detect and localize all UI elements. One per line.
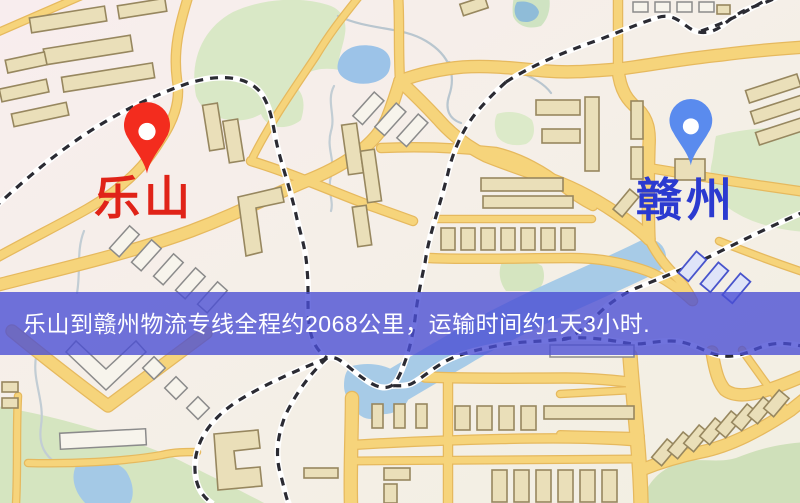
destination-label: 赣州 — [636, 178, 736, 224]
map-screenshot: 乐山 赣州 乐山到赣州物流专线全程约2068公里，运输时间约1天3小时. — [0, 0, 800, 503]
route-banner: 乐山到赣州物流专线全程约2068公里，运输时间约1天3小时. — [0, 292, 800, 355]
map-image — [0, 0, 800, 503]
origin-label: 乐山 — [94, 176, 194, 222]
route-banner-text: 乐山到赣州物流专线全程约2068公里，运输时间约1天3小时. — [23, 305, 650, 339]
